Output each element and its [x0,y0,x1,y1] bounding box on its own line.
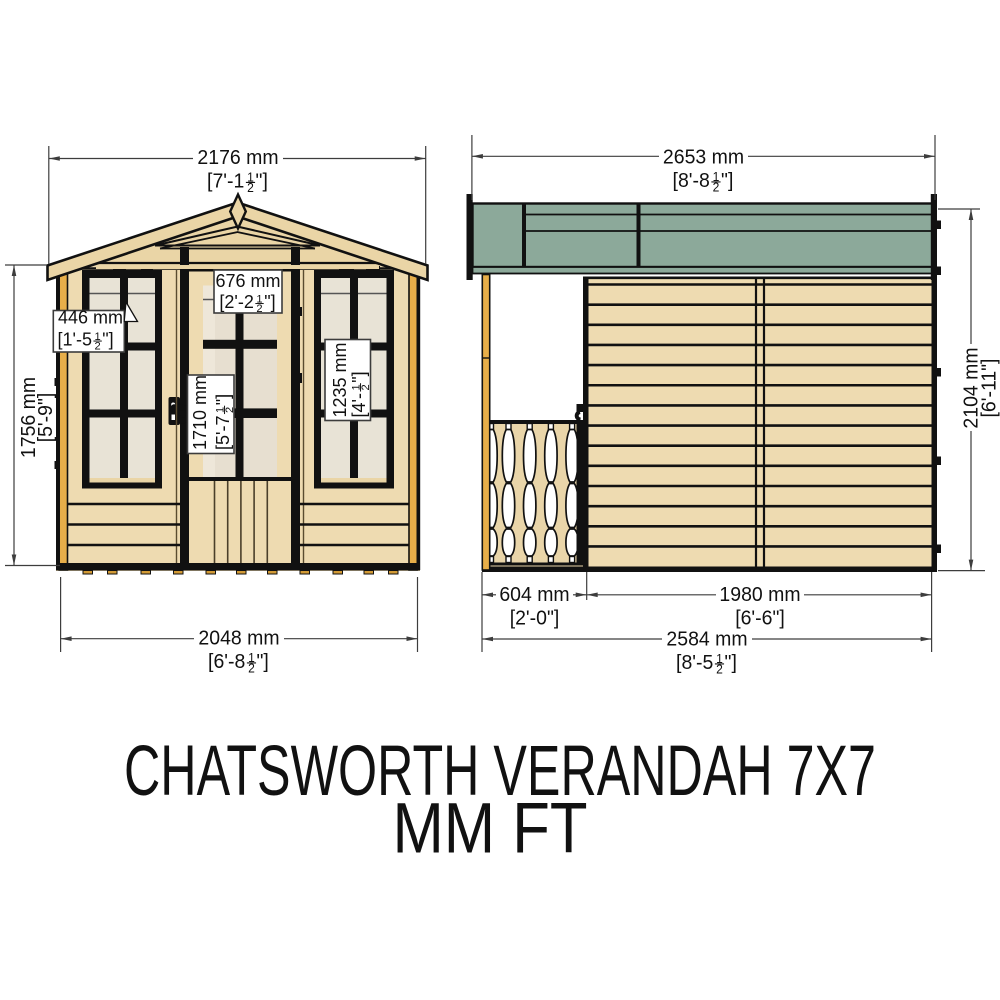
svg-text:2: 2 [95,341,101,353]
svg-text:604 mm: 604 mm [499,584,569,607]
svg-text:"]: "] [213,394,233,405]
svg-text:2: 2 [248,661,255,675]
svg-text:"]: "] [257,651,269,674]
svg-text:2584 mm: 2584 mm [666,628,747,651]
svg-text:[7'-1: [7'-1 [207,170,244,193]
svg-text:[5'-7: [5'-7 [213,416,233,450]
svg-text:2: 2 [256,303,262,315]
svg-text:2: 2 [247,181,254,195]
svg-text:2: 2 [360,384,372,390]
svg-text:446 mm: 446 mm [58,308,123,328]
svg-text:"]: "] [721,170,733,193]
svg-text:2: 2 [224,407,236,413]
svg-text:[4'-: [4'- [349,393,369,417]
svg-text:"]: "] [256,170,268,193]
svg-text:[6'-11"]: [6'-11"] [978,359,1000,418]
svg-text:2653 mm: 2653 mm [663,146,744,169]
svg-text:[2'-2: [2'-2 [219,292,253,312]
svg-text:2048 mm: 2048 mm [198,627,279,650]
svg-text:1710 mm: 1710 mm [190,375,210,450]
svg-text:2: 2 [716,662,723,676]
svg-text:[2'-0"]: [2'-0"] [510,607,560,630]
svg-text:1235 mm: 1235 mm [330,342,350,417]
svg-text:"]: "] [102,330,113,350]
svg-text:676 mm: 676 mm [215,271,280,291]
svg-text:[5'-9"]: [5'-9"] [35,393,58,443]
svg-text:2176 mm: 2176 mm [197,147,278,170]
svg-text:2: 2 [713,180,720,194]
svg-text:[6'-6"]: [6'-6"] [735,607,785,630]
svg-text:[6'-8: [6'-8 [208,651,245,674]
svg-text:"]: "] [264,292,275,312]
svg-text:MM FT: MM FT [393,790,588,869]
svg-text:[8'-5: [8'-5 [676,652,713,675]
svg-text:"]: "] [349,371,369,382]
svg-text:[1'-5: [1'-5 [58,330,92,350]
svg-text:"]: "] [725,652,737,675]
svg-text:[8'-8: [8'-8 [673,170,710,193]
svg-text:1980 mm: 1980 mm [719,584,800,607]
